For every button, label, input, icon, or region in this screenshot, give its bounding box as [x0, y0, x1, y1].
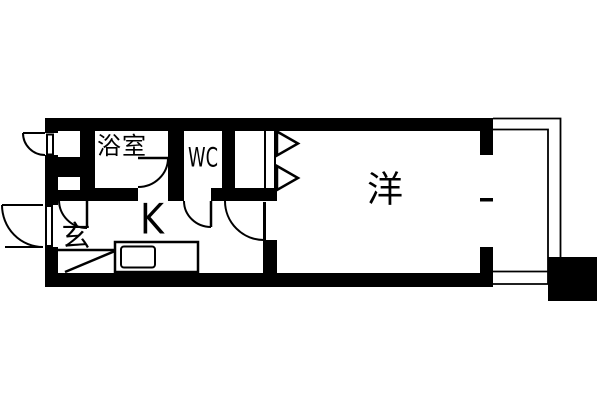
- floor-plan-page: 浴室 WC 玄 K 洋: [0, 0, 600, 410]
- entrance-door-arc: [2, 205, 43, 247]
- bathroom-label: 浴室: [97, 132, 147, 160]
- wall-wc-right: [222, 131, 235, 188]
- closet-symbols: [265, 131, 298, 190]
- entrance-diagonal-line: [65, 251, 115, 272]
- kitchen-label: K: [140, 195, 165, 244]
- meterbox-door-leaf: [47, 135, 53, 155]
- kitchen-sink: [121, 247, 155, 268]
- wall-mid-segment: [168, 188, 184, 201]
- wall-top: [45, 118, 493, 131]
- entrance-door-leaf: [46, 206, 52, 246]
- wall-nook-bath-divider: [80, 131, 95, 201]
- wall-right-upper: [480, 118, 493, 155]
- floor-plan: 浴室 WC 玄 K 洋: [0, 0, 600, 410]
- wall-right-lower: [480, 247, 493, 273]
- meterbox-door-arc: [23, 133, 45, 155]
- window-divider: [480, 198, 493, 202]
- wall-below-closet: [211, 188, 277, 201]
- wall-left-upper: [45, 118, 58, 133]
- wall-wc-left: [168, 131, 184, 188]
- closet-door-triangle-bottom: [277, 166, 298, 190]
- wall-nook-block-upper: [58, 157, 80, 177]
- wall-bottom: [45, 273, 493, 287]
- wc-door-arc: [184, 201, 211, 227]
- western-room-label: 洋: [367, 170, 403, 211]
- wc-label: WC: [188, 143, 218, 174]
- wall-kitchen-partition: [263, 240, 277, 273]
- balcony-outer-line: [493, 119, 561, 258]
- closet-door-triangle-top: [277, 132, 298, 156]
- kitchen-door-arc: [225, 201, 264, 240]
- wall-left-middle: [45, 155, 58, 205]
- balcony-pillar: [548, 257, 597, 301]
- balcony-inner-line: [493, 130, 548, 285]
- wall-bathroom-bottom: [95, 188, 138, 201]
- bathroom-door-arc: [138, 158, 168, 187]
- entrance-label: 玄: [61, 219, 90, 253]
